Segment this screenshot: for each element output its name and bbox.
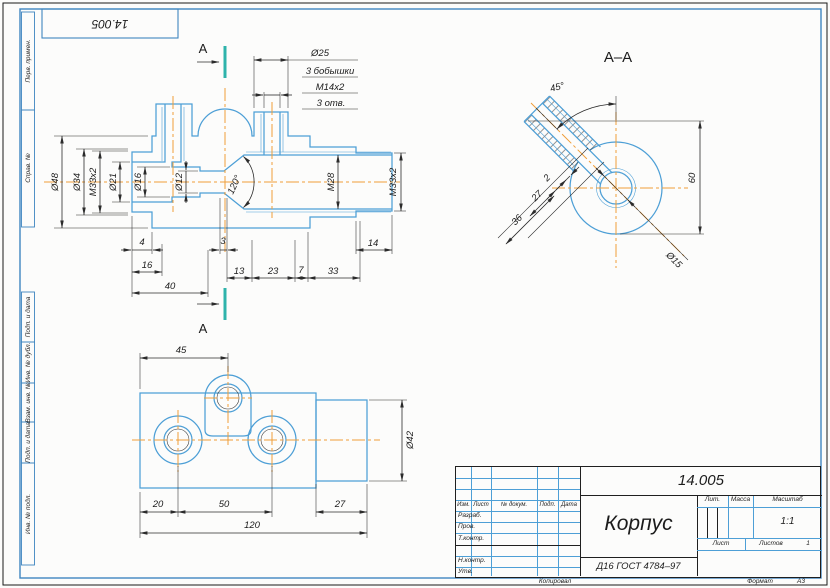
svg-text:Ø21: Ø21 [108, 173, 119, 192]
svg-text:14: 14 [368, 238, 379, 249]
boss-callout: Ø25 3 бобышки М14х2 3 отв. [252, 48, 358, 109]
svg-text:Ø12: Ø12 [174, 172, 185, 192]
svg-text:4: 4 [139, 237, 144, 248]
svg-text:Ø42: Ø42 [405, 430, 416, 450]
svg-text:20: 20 [152, 499, 164, 510]
section-aa-view: А–А 45° [498, 49, 704, 271]
svg-text:120°: 120° [226, 174, 244, 197]
tb-scale-value: 1:1 [753, 517, 822, 527]
thread-lines [162, 107, 391, 212]
tb-row-utv: Утв. [458, 569, 473, 576]
svg-text:45: 45 [176, 345, 187, 356]
plan-dims: 45 Ø42 20 50 27 120 [140, 345, 416, 538]
main-view: А А Ø48 Ø34 М33х2 Ø21 Ø16 Ø12 [44, 41, 406, 336]
tb-col-list: Лист [471, 502, 491, 508]
margin-label: Справ. № [25, 153, 32, 183]
svg-text:45°: 45° [549, 80, 566, 94]
tb-scale-label: Масштаб [753, 497, 822, 504]
tb-material: Д16 ГОСТ 4784–97 [580, 562, 697, 572]
svg-text:3: 3 [220, 236, 226, 247]
part-section [132, 104, 392, 228]
tb-row-razrab: Разраб. [458, 513, 482, 520]
margin-label: Взам. инв. № [25, 382, 32, 422]
tb-part-name: Корпус [580, 513, 697, 534]
tb-row-prov: Пров. [458, 524, 475, 531]
svg-text:Ø16: Ø16 [133, 172, 144, 192]
svg-text:40: 40 [165, 281, 176, 292]
tb-mass-label: Масса [728, 497, 753, 504]
section-letter-top: А [199, 41, 208, 56]
tb-row-nkontr: Н.контр. [458, 558, 486, 565]
svg-text:М28: М28 [326, 172, 337, 191]
dim-d15: Ø15 [596, 168, 688, 271]
svg-text:27: 27 [529, 188, 545, 204]
tb-doc-number: 14.005 [580, 473, 822, 488]
format-label: Формат [735, 579, 785, 586]
copied-label: Копировал [505, 579, 605, 586]
svg-text:120: 120 [244, 520, 261, 531]
margin-label: Подп. и дата [24, 422, 32, 463]
tb-lit-label: Лит. [697, 497, 728, 504]
svg-text:3 отв.: 3 отв. [317, 98, 346, 109]
section-cut-marks: А А [197, 41, 225, 336]
margin-label: Перв. примен. [25, 39, 32, 82]
margin-label: Подп. и дата [24, 296, 32, 337]
svg-text:Ø15: Ø15 [663, 249, 685, 271]
tb-row-tkontr: Т.контр. [458, 536, 484, 543]
left-dims: Ø48 Ø34 М33х2 Ø21 Ø16 Ø12 [50, 136, 198, 228]
svg-text:60: 60 [687, 172, 698, 183]
svg-text:Ø48: Ø48 [50, 172, 61, 192]
svg-text:50: 50 [219, 499, 230, 510]
section-letter-bottom: А [199, 321, 208, 336]
drawing-sheet: Перв. примен. Справ. № Подп. и дата Инв.… [0, 0, 830, 588]
right-dims: М28 М33х2 14 [326, 153, 406, 254]
tb-col-doc: № докум. [491, 502, 537, 508]
svg-text:М33х2: М33х2 [388, 167, 399, 196]
svg-text:3 бобышки: 3 бобышки [306, 66, 355, 77]
plan-view: 45 Ø42 20 50 27 120 [132, 345, 416, 538]
svg-text:7: 7 [298, 265, 304, 276]
svg-text:2: 2 [541, 172, 554, 185]
svg-text:Ø34: Ø34 [72, 173, 83, 192]
format-value: А3 [790, 579, 812, 586]
tb-col-izm: Изм. [456, 502, 471, 508]
svg-text:27: 27 [334, 499, 346, 510]
plan-centerlines [132, 366, 380, 472]
tb-col-data: Дата [558, 502, 580, 508]
top-stamp-number: 14.005 [91, 17, 128, 31]
svg-text:13: 13 [234, 266, 245, 277]
svg-text:23: 23 [267, 266, 279, 277]
svg-text:Ø25: Ø25 [310, 48, 330, 59]
tb-col-podp: Подп. [537, 502, 558, 508]
svg-text:33: 33 [328, 266, 339, 277]
margin-label: Инв. № дубл. [24, 342, 32, 382]
svg-text:36: 36 [510, 212, 526, 228]
tb-sheets-value: 1 [800, 541, 816, 548]
svg-text:М14х2: М14х2 [316, 82, 345, 93]
bottom-dims: 4 16 40 3 13 23 7 33 [121, 198, 360, 297]
tb-sheet-label: Лист [697, 541, 745, 548]
svg-text:М33х2: М33х2 [88, 167, 99, 196]
margin-label: Инв. № подл. [24, 494, 32, 535]
section-title: А–А [604, 49, 632, 66]
title-block: 14.005 Корпус Д16 ГОСТ 4784–97 Изм. Лист… [455, 466, 821, 578]
tb-sheets-label: Листов [748, 541, 794, 548]
svg-text:16: 16 [142, 260, 153, 271]
